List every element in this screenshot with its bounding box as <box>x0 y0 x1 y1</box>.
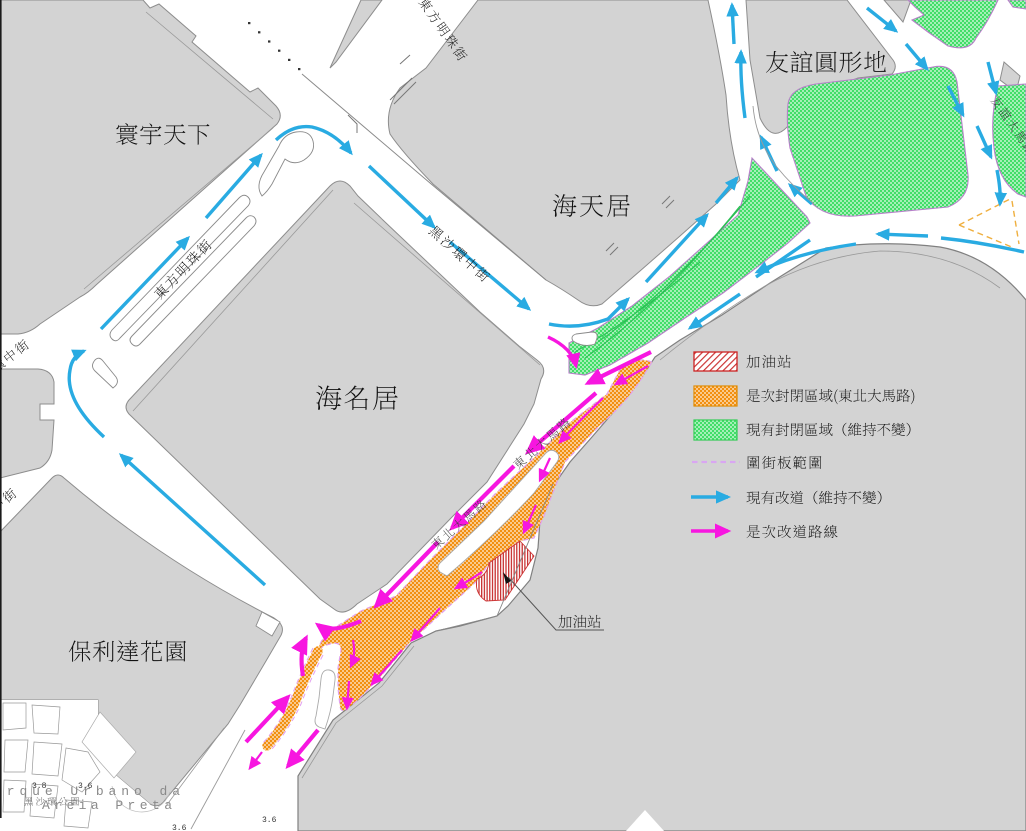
svg-text:3.6: 3.6 <box>262 816 277 825</box>
svg-text:3.6: 3.6 <box>172 824 187 831</box>
svg-text:arque Urbano da: arque Urbano da <box>0 784 180 799</box>
svg-text:Areia Preta: Areia Preta <box>42 798 172 813</box>
